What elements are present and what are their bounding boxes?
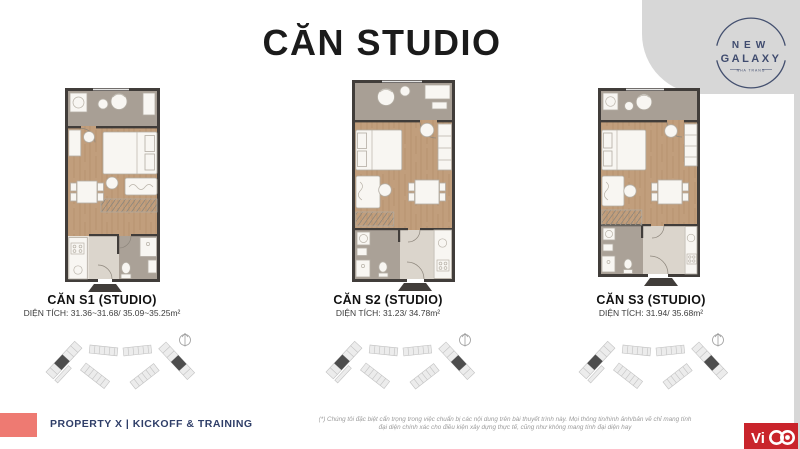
- washer-bath: [603, 228, 615, 240]
- site-keyplan-s3: [566, 331, 741, 393]
- site-keyplan-s1: [33, 331, 208, 393]
- rug: [101, 199, 157, 212]
- window: [626, 89, 664, 91]
- page-title: CĂN STUDIO: [0, 22, 764, 64]
- disclaimer-line2: đại diện chính xác cho điều kiện xây dựn…: [255, 424, 755, 432]
- cabinet: [69, 130, 81, 156]
- cabinet: [685, 124, 698, 166]
- balcony-pouf: [98, 99, 108, 109]
- entry-floor: [643, 226, 684, 274]
- bed: [103, 132, 157, 174]
- balcony-chair: [111, 94, 127, 110]
- entry-marker: [644, 278, 678, 286]
- logo-tagline: NHA TRANG: [737, 68, 766, 72]
- sofa: [125, 178, 157, 195]
- chaise: [356, 176, 380, 208]
- site-keyplan-s2: [313, 331, 488, 393]
- floor-plan-s3: [598, 88, 700, 287]
- plan-area: DIỆN TÍCH: 31.36~31.68/ 35.09~35.25m²: [12, 308, 192, 318]
- pouf: [106, 177, 118, 189]
- plan-area: DIỆN TÍCH: 31.23/ 34.78m²: [298, 308, 478, 318]
- wardrobe: [356, 212, 394, 226]
- stool: [84, 132, 95, 143]
- vico-logo-rings: [770, 431, 793, 443]
- floor-plan-s2: [352, 80, 455, 292]
- washing-machine: [603, 93, 618, 110]
- plan-s3-label: CĂN S3 (STUDIO) DIỆN TÍCH: 31.94/ 35.68m…: [561, 293, 741, 318]
- entry-floor: [89, 236, 119, 279]
- entry-marker: [88, 284, 122, 292]
- entry-floor: [400, 230, 433, 279]
- kitchen-counter: [69, 238, 88, 280]
- plan-name: CĂN S1 (STUDIO): [12, 293, 192, 307]
- vico-logo-dot: [785, 435, 790, 440]
- toilet: [379, 262, 389, 277]
- toilet: [624, 259, 633, 274]
- pouf: [379, 184, 392, 197]
- pouf: [624, 185, 636, 197]
- window: [382, 81, 422, 83]
- kitchen-counter: [434, 230, 452, 279]
- toilet: [121, 262, 131, 278]
- disclaimer: (*) Chúng tôi đặc biệt cẩn trọng trong v…: [255, 416, 755, 432]
- footer-accent-bar: [0, 413, 37, 437]
- bath-sink: [148, 260, 157, 273]
- kitchen-counter: [685, 227, 697, 275]
- plan-name: CĂN S2 (STUDIO): [298, 293, 478, 307]
- balcony-shelf: [143, 93, 155, 115]
- wardrobe: [602, 210, 642, 225]
- balcony-pouf: [625, 102, 634, 111]
- window: [93, 89, 129, 91]
- washing-machine: [70, 93, 87, 112]
- balcony-pouf: [400, 86, 410, 96]
- balcony-cabinet: [425, 85, 450, 99]
- chaise: [602, 176, 624, 206]
- vico-logo-text: Vi: [751, 430, 765, 447]
- shower: [602, 256, 615, 272]
- plan-s2-label: CĂN S2 (STUDIO) DIỆN TÍCH: 31.23/ 34.78m…: [298, 293, 478, 318]
- washing-machine: [357, 232, 370, 245]
- cabinet: [438, 124, 452, 170]
- plan-area: DIỆN TÍCH: 31.94/ 35.68m²: [561, 308, 741, 318]
- entry-marker: [398, 283, 432, 291]
- balcony-chair: [636, 94, 652, 110]
- bed: [356, 130, 402, 170]
- bed: [602, 130, 646, 170]
- shower: [140, 238, 157, 257]
- plan-name: CĂN S3 (STUDIO): [561, 293, 741, 307]
- logo-line2: GALAXY: [721, 53, 782, 65]
- slide: CĂN STUDIO NEW GALAXY NHA TRANG: [0, 0, 800, 449]
- event-title: PROPERTY X | KICKOFF & TRAINING: [50, 418, 253, 430]
- vico-logo-graphic: Vi: [744, 423, 798, 449]
- disclaimer-line1: (*) Chúng tôi đặc biệt cẩn trọng trong v…: [255, 416, 755, 424]
- plan-s1-label: CĂN S1 (STUDIO) DIỆN TÍCH: 31.36~31.68/ …: [12, 293, 192, 318]
- shower: [356, 260, 370, 277]
- round-table: [665, 125, 678, 138]
- floor-plan-s1: [65, 88, 160, 293]
- balcony-shelf: [432, 102, 447, 109]
- bath-sink: [603, 244, 613, 251]
- new-galaxy-logo: NEW GALAXY NHA TRANG: [705, 12, 797, 94]
- balcony-chair: [378, 89, 395, 106]
- round-table: [420, 123, 434, 137]
- logo-line1: NEW: [732, 40, 770, 51]
- bath-sink: [357, 248, 367, 256]
- vico-logo: Vi: [744, 423, 798, 449]
